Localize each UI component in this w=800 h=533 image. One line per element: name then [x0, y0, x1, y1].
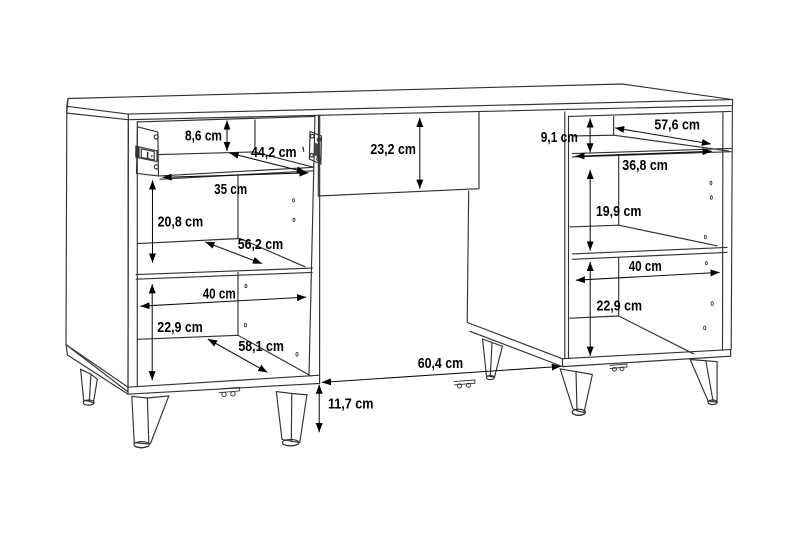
svg-text:22,9 cm: 22,9 cm: [597, 298, 643, 315]
svg-text:58,1 cm: 58,1 cm: [238, 338, 284, 355]
svg-text:8,6 cm: 8,6 cm: [185, 128, 222, 145]
svg-text:44,2 cm: 44,2 cm: [251, 144, 297, 161]
svg-text:20,8 cm: 20,8 cm: [158, 214, 204, 231]
svg-text:57,6 cm: 57,6 cm: [654, 116, 700, 133]
svg-text:19,9 cm: 19,9 cm: [596, 203, 642, 220]
svg-text:22,9 cm: 22,9 cm: [157, 319, 203, 336]
svg-text:36,8 cm: 36,8 cm: [622, 157, 668, 174]
svg-text:40 cm: 40 cm: [629, 258, 662, 275]
svg-text:60,4 cm: 60,4 cm: [418, 355, 464, 372]
svg-text:11,7 cm: 11,7 cm: [328, 396, 374, 413]
svg-text:9,1 cm: 9,1 cm: [541, 129, 578, 146]
svg-text:23,2 cm: 23,2 cm: [370, 141, 416, 158]
svg-text:56,2 cm: 56,2 cm: [238, 236, 284, 253]
svg-text:40 cm: 40 cm: [203, 285, 236, 302]
svg-text:35 cm: 35 cm: [214, 181, 247, 198]
